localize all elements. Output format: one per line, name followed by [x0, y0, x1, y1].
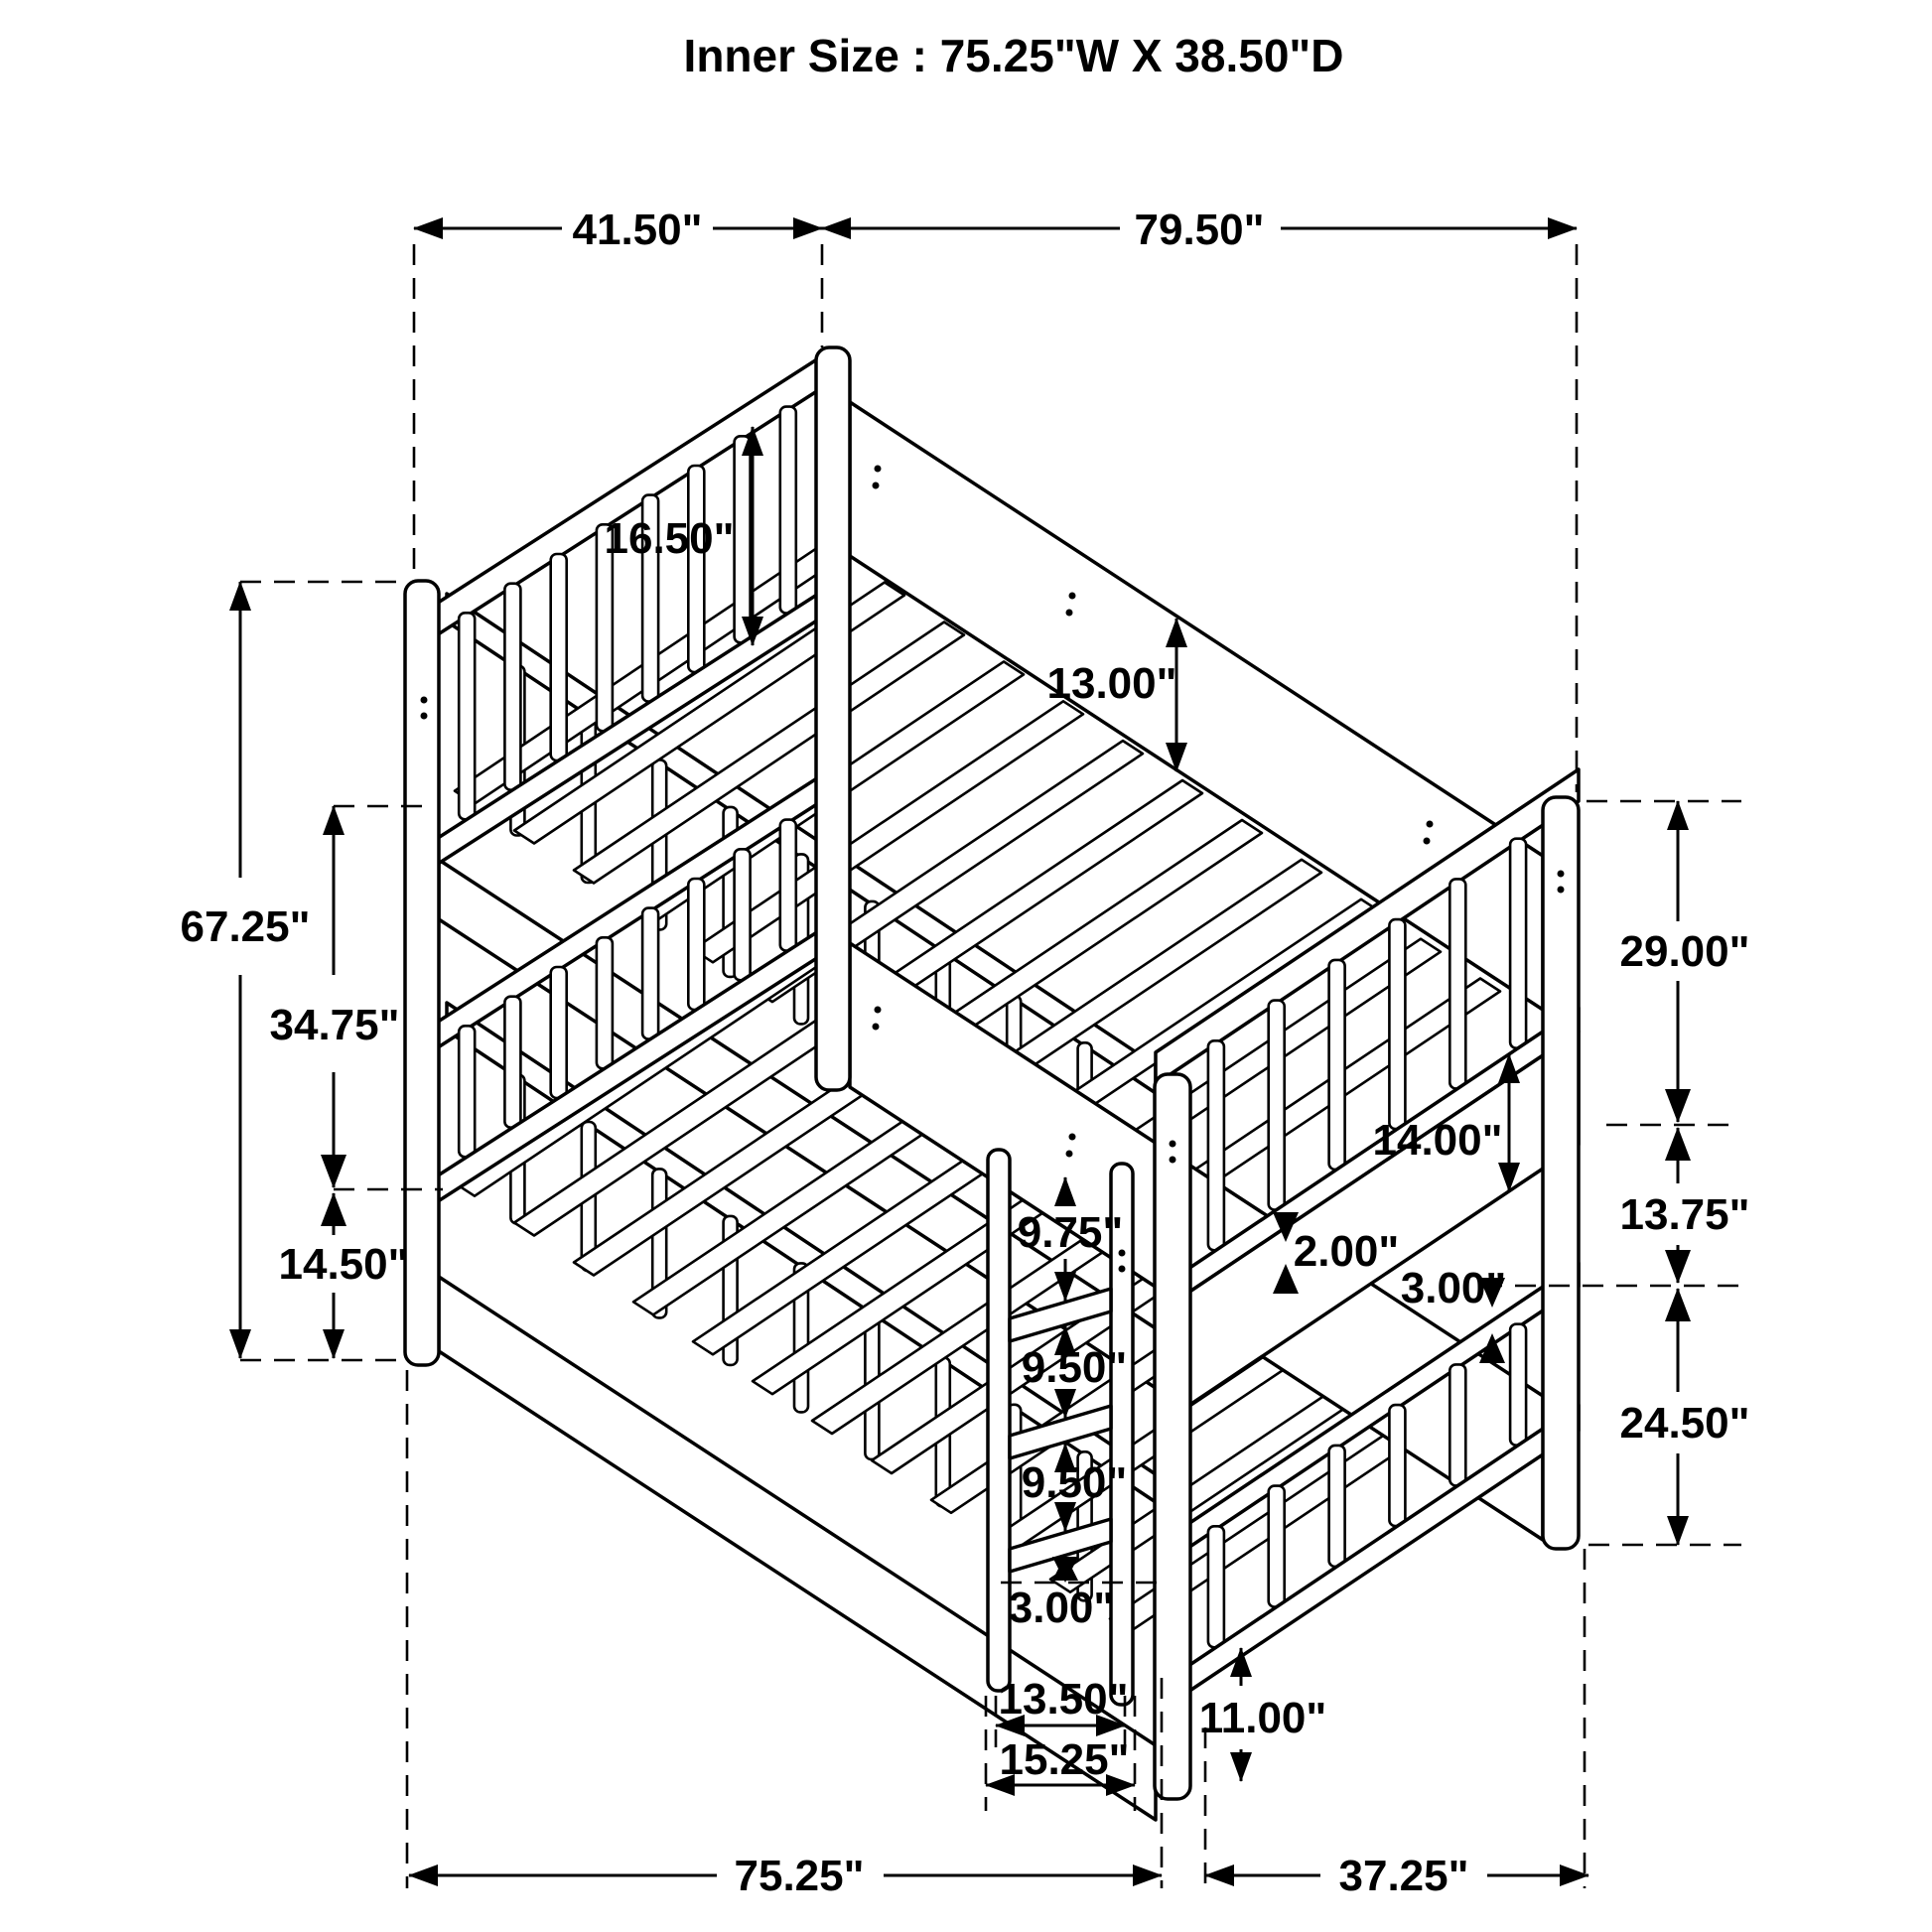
screw-dot: [1170, 1141, 1176, 1148]
headboard-slat: [780, 820, 796, 951]
screw-dot: [875, 1007, 882, 1014]
footboard-spindle: [1449, 1364, 1465, 1485]
headboard-slat: [459, 1026, 475, 1157]
footboard-spindle: [1329, 1446, 1345, 1567]
screw-dot: [873, 1024, 880, 1031]
screw-dot: [1170, 1157, 1176, 1164]
screw-dot: [1069, 1134, 1076, 1141]
screw-dot: [1069, 593, 1076, 600]
footboard-spindle: [1389, 1405, 1405, 1526]
dim-ladder-outer-width: 15.25": [1000, 1735, 1130, 1784]
screw-dot: [873, 483, 880, 489]
ladder-left-stile: [988, 1150, 1010, 1691]
dim-ladder-bottom-gap: 3.00": [1009, 1584, 1115, 1632]
headboard-slat: [780, 407, 796, 614]
headboard-slat: [597, 937, 613, 1068]
footboard-spindle: [1329, 960, 1345, 1170]
bunk-bed-drawing: [405, 347, 1579, 1820]
headboard-slat: [459, 613, 475, 819]
headboard-slat: [551, 554, 567, 760]
footboard-spindle: [1389, 919, 1405, 1129]
headboard-slat: [735, 436, 751, 642]
screw-dot: [1424, 838, 1431, 845]
screw-dot: [421, 697, 428, 704]
dim-right-middle: 13.75": [1620, 1190, 1750, 1239]
headboard-slat: [551, 967, 567, 1098]
footboard-spindle: [1510, 1324, 1526, 1446]
screw-dot: [1558, 871, 1565, 878]
page-title: Inner Size : 75.25"W X 38.50"D: [684, 30, 1344, 81]
footboard-spindle: [1208, 1526, 1224, 1647]
headboard-slat: [504, 584, 520, 790]
back-right-post: [1155, 1074, 1190, 1799]
dim-footboard-panel: 14.00": [1373, 1116, 1503, 1165]
dim-upper-deck-height: 34.75": [270, 1001, 400, 1049]
dim-top-length: 79.50": [1135, 206, 1265, 254]
footboard-spindle: [1269, 1001, 1285, 1210]
bunk-bed-spec-sheet: Inner Size : 75.25"W X 38.50"D 41.50" 79…: [0, 0, 1932, 1932]
headboard-slat: [688, 466, 704, 672]
headboard-slat: [504, 997, 520, 1128]
dim-right-upper: 29.00": [1620, 927, 1750, 976]
diagram-svg: Inner Size : 75.25"W X 38.50"D 41.50" 79…: [0, 0, 1932, 1932]
dim-bottom-depth: 37.25": [1339, 1852, 1469, 1900]
footboard-spindle: [1208, 1040, 1224, 1250]
front-left-post: [816, 347, 850, 1090]
dim-lower-deck-height: 14.50": [279, 1240, 409, 1289]
screw-dot: [421, 713, 428, 720]
screw-dot: [1558, 887, 1565, 894]
dim-bottom-length: 75.25": [735, 1852, 865, 1900]
front-right-post: [1543, 797, 1579, 1549]
dim-side-rail: 13.00": [1047, 659, 1177, 708]
headboard-slat: [735, 849, 751, 980]
headboard-slat: [688, 879, 704, 1010]
dim-ladder-step-3: 9.50": [1022, 1458, 1128, 1507]
dim-ladder-step-1: 9.75": [1018, 1208, 1124, 1257]
screw-dot: [875, 466, 882, 473]
dim-ground-clearance: 11.00": [1199, 1694, 1327, 1742]
dim-guard-gap: 3.00": [1401, 1264, 1507, 1312]
dim-right-lower: 24.50": [1620, 1399, 1750, 1448]
footboard-spindle: [1269, 1486, 1285, 1607]
screw-dot: [1427, 821, 1434, 828]
dim-top-depth: 41.50": [573, 206, 703, 254]
dim-ladder-step-2: 9.50": [1022, 1343, 1128, 1392]
screw-dot: [1119, 1266, 1126, 1273]
dim-headboard-panel: 16.50": [605, 514, 735, 563]
dim-ladder-inner-width: 13.50": [999, 1675, 1129, 1724]
screw-dot: [1066, 610, 1073, 617]
dim-slat-thickness: 2.00": [1294, 1227, 1400, 1276]
screw-dot: [1066, 1151, 1073, 1158]
dim-overall-height: 67.25": [181, 902, 311, 951]
footboard-spindle: [1449, 879, 1465, 1088]
footboard-spindle: [1510, 839, 1526, 1048]
headboard-slat: [642, 908, 658, 1039]
